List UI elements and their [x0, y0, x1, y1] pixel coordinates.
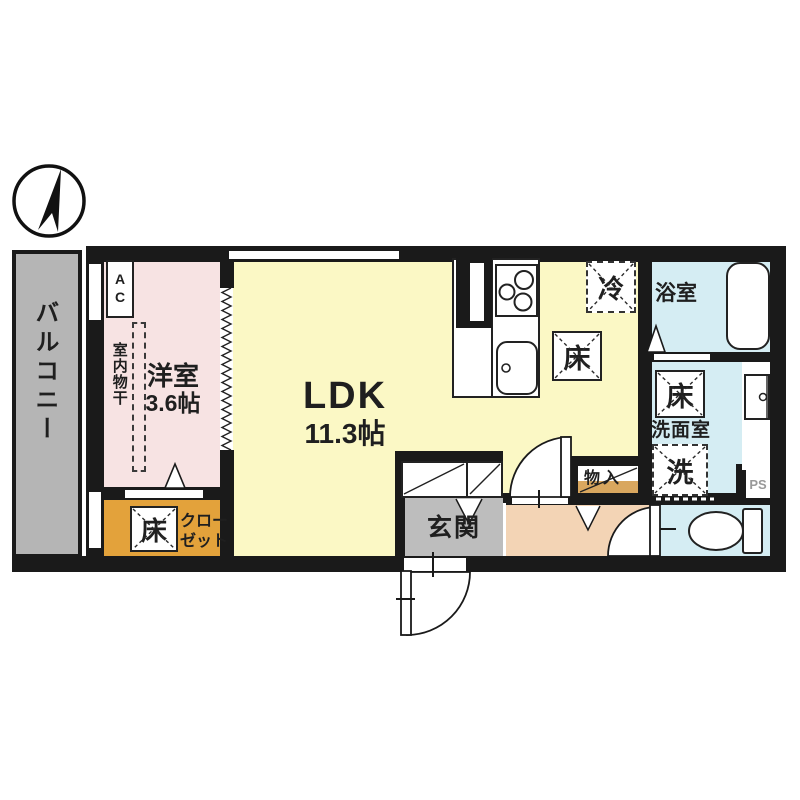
- western-room-label: 洋室 3.6帖: [118, 356, 228, 422]
- wall-top: [86, 246, 786, 262]
- floor-plan: バルコニー AC 室内物干 冷 床: [0, 0, 800, 800]
- bathtub: [726, 262, 770, 350]
- pipe-space-label: PS: [749, 477, 766, 492]
- wall-storage-top: [566, 456, 652, 466]
- ldk-door-opening: [511, 494, 569, 505]
- storage-label: 物入: [584, 470, 622, 488]
- closet-label: クロー ゼット: [180, 512, 228, 552]
- ac-label: AC: [112, 271, 128, 307]
- shoe-cabinet: [401, 461, 503, 498]
- closet-door-opening: [124, 489, 204, 499]
- room-toilet-floor: [655, 505, 770, 556]
- pipe-space: PS: [746, 470, 770, 498]
- closet-label-line1: クロー: [180, 512, 228, 532]
- floor-storage-washroom-label: 床: [667, 375, 694, 414]
- floor-storage-washroom: 床: [655, 370, 705, 418]
- room-ldk-floor-south: [233, 497, 395, 556]
- hallway-floor: [506, 505, 652, 556]
- kitchen-duct-slot: [470, 263, 484, 321]
- compass-icon: [14, 166, 84, 236]
- ldk-name: LDK: [303, 375, 387, 418]
- window-western-top: [88, 263, 102, 321]
- washer-label: 洗: [667, 451, 694, 490]
- wall-western-ldk-top: [220, 262, 234, 288]
- refrigerator-label: 冷: [598, 269, 624, 306]
- shoe-cabinet-divider: [466, 462, 468, 496]
- washer-space: 洗: [652, 444, 708, 496]
- entrance-door-opening: [403, 557, 467, 572]
- entrance-label: 玄関: [405, 508, 503, 548]
- floor-storage-closet: 床: [130, 506, 178, 552]
- washroom-label: 洗面室: [651, 420, 711, 441]
- closet-label-line2: ゼット: [180, 532, 228, 552]
- western-room-name: 洋室: [147, 362, 199, 391]
- wall-ldk-wetarea: [638, 258, 652, 505]
- window-ldk-top: [228, 250, 400, 260]
- refrigerator-space: 冷: [586, 261, 636, 313]
- western-room-size: 3.6帖: [146, 391, 201, 417]
- ac-unit: AC: [106, 260, 134, 318]
- bathroom-label: 浴室: [655, 282, 697, 306]
- ldk-label: LDK 11.3帖: [265, 372, 425, 452]
- stove: [495, 264, 538, 317]
- balcony-label: バルコニー: [30, 300, 57, 445]
- balcony: バルコニー: [12, 250, 82, 558]
- ldk-size: 11.3帖: [305, 418, 386, 449]
- floor-storage-ldk: 床: [552, 331, 602, 381]
- bathroom-door-opening: [654, 354, 710, 360]
- wall-bottom: [12, 556, 786, 572]
- entrance-step-line: [503, 503, 506, 556]
- wall-right: [770, 246, 786, 572]
- window-closet-side: [88, 491, 102, 549]
- floor-storage-closet-label: 床: [141, 511, 167, 548]
- wall-entrance-top: [395, 451, 503, 461]
- vanity-basin: [744, 374, 770, 420]
- floor-storage-ldk-label: 床: [564, 337, 591, 376]
